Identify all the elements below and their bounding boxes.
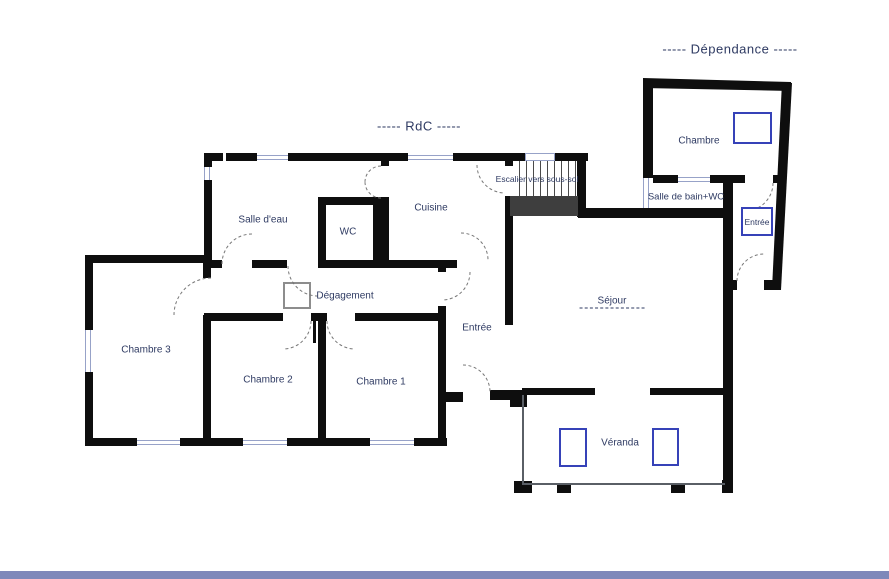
- floor-plan: ----- RdC ----- ----- Dépendance -----: [0, 0, 889, 579]
- room-label-degagement: Dégagement: [316, 291, 373, 302]
- wall-segment: [85, 372, 93, 446]
- wall-segment: [438, 306, 446, 446]
- room-label-dependance-salle-de-bain-wc: Salle de bain+WC: [648, 192, 724, 203]
- wall-segment: [318, 321, 326, 438]
- wall-segment: [180, 438, 243, 446]
- room-label-dependance-chambre: Chambre: [678, 136, 719, 147]
- window-marker: [257, 155, 288, 160]
- room-label-salle-deau: Salle d'eau: [238, 215, 287, 226]
- door-arc: [463, 365, 490, 392]
- room-label-chambre-1: Chambre 1: [356, 377, 405, 388]
- veranda-frame: [522, 483, 725, 485]
- wall-segment: [710, 175, 745, 183]
- window-marker: [525, 153, 555, 161]
- window-marker: [137, 440, 180, 445]
- door-arc: [283, 321, 311, 349]
- wall-segment: [381, 161, 389, 166]
- wall-segment: [318, 197, 381, 205]
- room-label-escalier: Escalier vers sous-sol: [496, 174, 579, 184]
- door-arc: [737, 254, 764, 281]
- wall-segment: [650, 388, 724, 395]
- wall-segment: [355, 313, 446, 321]
- window-marker: [204, 167, 210, 180]
- rdc-title: ----- RdC -----: [377, 119, 461, 134]
- door-arc: [365, 166, 381, 182]
- wall-segment: [204, 260, 222, 268]
- room-label-cuisine: Cuisine: [414, 203, 447, 214]
- wall-segment: [203, 315, 211, 446]
- wall-segment: [438, 260, 446, 272]
- wall-segment: [311, 313, 327, 321]
- door-arc: [461, 233, 488, 260]
- wall-segment: [204, 153, 223, 161]
- door-leaf: [313, 321, 316, 343]
- door-arc: [365, 182, 381, 198]
- wall-segment: [318, 205, 326, 260]
- closet-box: [283, 282, 311, 309]
- wall-segment-slanted: [643, 78, 791, 91]
- wall-segment: [555, 153, 588, 161]
- wall-segment: [578, 208, 724, 218]
- window-marker: [370, 440, 414, 445]
- window-marker: [408, 155, 453, 160]
- wall-segment: [643, 85, 653, 178]
- wall-segment: [724, 280, 737, 290]
- roof-window-box: [733, 112, 772, 144]
- wall-segment: [226, 153, 257, 161]
- door-arc: [222, 234, 252, 264]
- door-arc: [442, 272, 470, 300]
- door-arc: [327, 321, 355, 349]
- wall-segment: [204, 180, 212, 263]
- room-label-chambre-2: Chambre 2: [243, 375, 292, 386]
- wall-segment: [85, 255, 211, 263]
- wall-segment: [505, 161, 513, 166]
- wall-segment: [653, 175, 678, 183]
- room-label-sejour: Séjour: [580, 296, 645, 309]
- room-label-chambre-3: Chambre 3: [121, 345, 170, 356]
- room-label-dependance-entree: Entrée: [744, 217, 769, 227]
- veranda-frame: [522, 395, 524, 485]
- wall-segment: [764, 280, 781, 290]
- wall-segment: [453, 153, 525, 161]
- wall-segment: [381, 197, 389, 260]
- wall-segment: [318, 260, 381, 268]
- wall-segment: [373, 205, 381, 260]
- room-label-veranda: Véranda: [601, 438, 639, 449]
- window-marker: [678, 177, 710, 182]
- wall-segment: [438, 392, 463, 402]
- wall-segment: [85, 438, 137, 446]
- footer-bar: [0, 571, 889, 579]
- plan-overlay: [0, 0, 889, 579]
- room-label-entree: Entrée: [462, 323, 491, 334]
- wall-segment: [773, 175, 782, 183]
- window-marker: [243, 440, 287, 445]
- wall-segment: [288, 153, 408, 161]
- stair-landing: [510, 196, 578, 216]
- door-arc: [174, 278, 211, 315]
- wall-segment: [204, 313, 283, 321]
- wall-segment: [252, 260, 287, 268]
- wall-segment: [723, 177, 733, 490]
- wall-segment: [85, 263, 93, 330]
- roof-window-box: [652, 428, 679, 466]
- wall-segment: [287, 438, 370, 446]
- wall-segment-slanted: [772, 82, 792, 290]
- dependance-title: ----- Dépendance -----: [662, 42, 797, 57]
- window-marker: [85, 330, 91, 372]
- dependance-entree-box: Entrée: [741, 207, 773, 236]
- room-label-wc: WC: [340, 227, 357, 238]
- roof-window-box: [559, 428, 587, 467]
- veranda-post: [722, 480, 733, 493]
- wall-segment: [522, 388, 595, 395]
